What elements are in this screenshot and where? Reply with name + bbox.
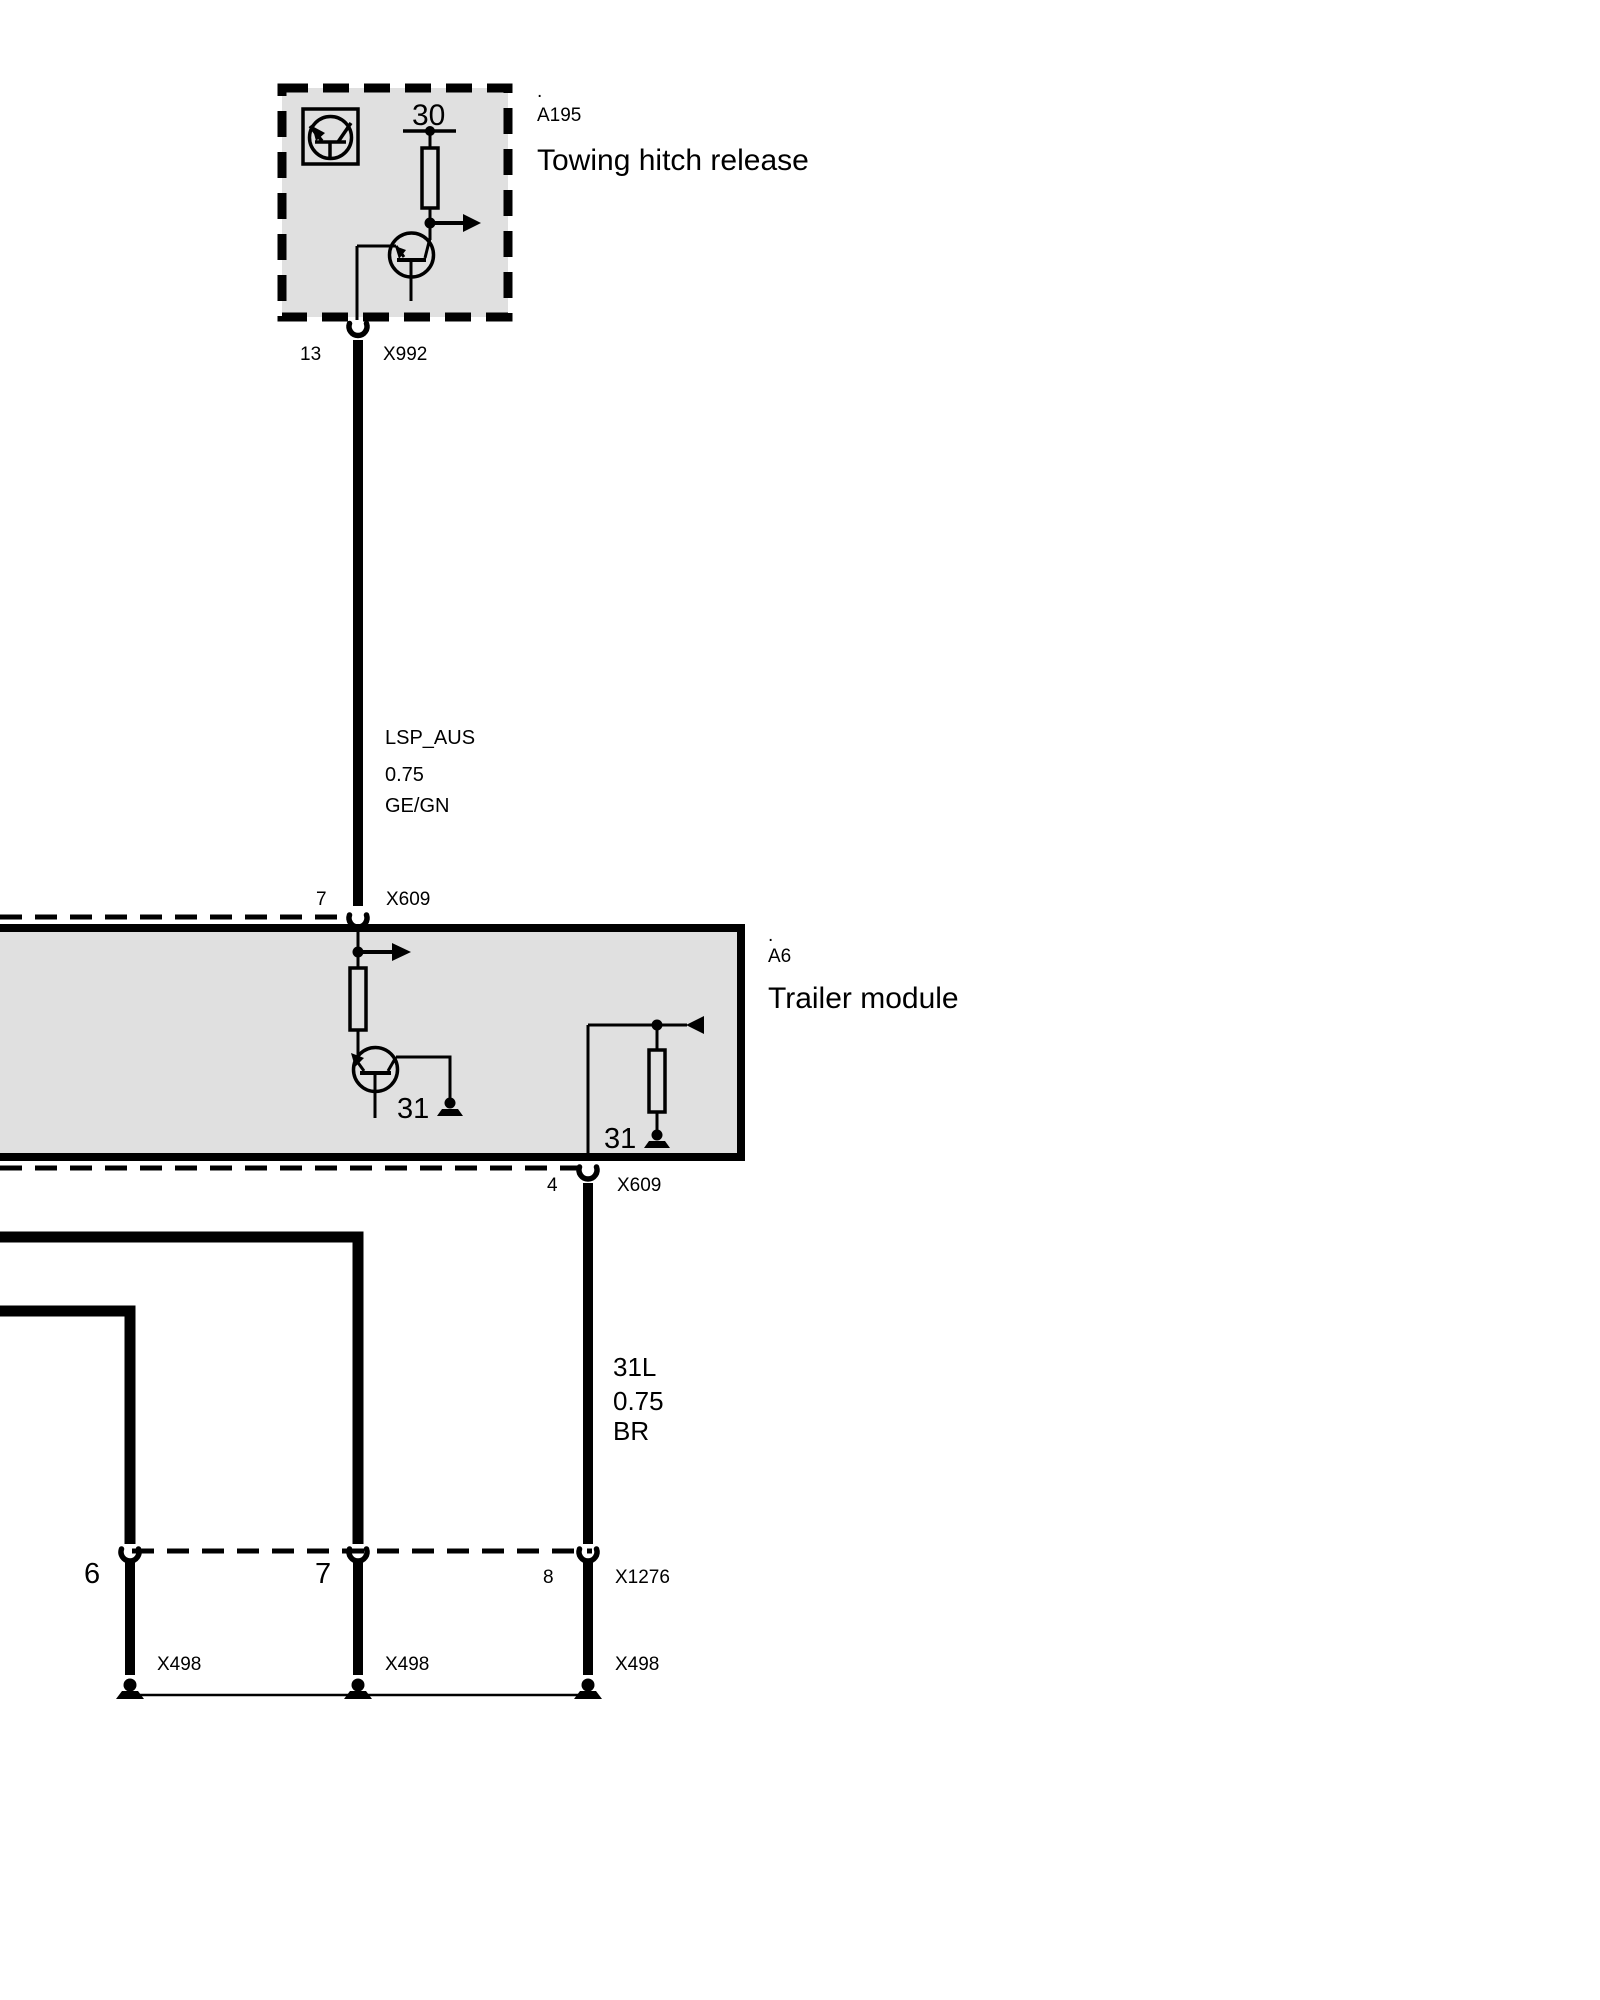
x1276-pin7-label: 7: [315, 1558, 331, 1590]
ground-symbol-left: [116, 1679, 144, 1700]
x498-left-label: X498: [157, 1654, 201, 1675]
a195-id-label: A195: [537, 105, 581, 126]
connector-x1276: 6 7 8 X1276: [84, 1549, 670, 1590]
terminal-31-right-label: 31: [604, 1123, 636, 1155]
wire-lsp-aus-name: LSP_AUS: [385, 727, 475, 749]
wire-lsp-aus-labels: LSP_AUS 0.75 GE/GN: [385, 727, 475, 817]
towing-hitch-release-labels: . A195 Towing hitch release: [537, 81, 809, 177]
x609-top-id-label: X609: [386, 889, 430, 910]
wire-lsp-aus-color: GE/GN: [385, 795, 449, 817]
x1276-id-label: X1276: [615, 1567, 670, 1588]
a6-name-label: Trailer module: [768, 982, 959, 1015]
connector-x992: 13 X992: [300, 324, 427, 366]
wire-31l-labels: 31L 0.75 BR: [613, 1352, 664, 1446]
ground-left-dot: [124, 1679, 137, 1692]
ground-symbol-right: [574, 1679, 602, 1700]
x1276-pin6-label: 6: [84, 1558, 100, 1590]
towing-hitch-release-box: 30: [282, 88, 508, 320]
a6-id-label: A6: [768, 946, 791, 967]
trailer-module-labels: . A6 Trailer module: [768, 925, 959, 1015]
ground-right-dot: [582, 1679, 595, 1692]
ground-symbol-middle: [344, 1679, 372, 1700]
connector-x609-bottom: 4 X609: [547, 1167, 661, 1196]
x992-id-label: X992: [383, 344, 427, 365]
x609-bottom-pin-label: 4: [547, 1175, 558, 1196]
connector-x609-top-cup: [349, 915, 367, 927]
x1276-pin8-label: 8: [543, 1567, 554, 1588]
ground-left-bar: [116, 1691, 144, 1699]
wire-31l-size: 0.75: [613, 1386, 664, 1416]
connector-x609-bottom-cup: [579, 1167, 597, 1179]
ground-a6-right-dot: [652, 1130, 663, 1141]
terminal-31-left-label: 31: [397, 1093, 429, 1125]
ground-right-bar: [574, 1691, 602, 1699]
wire-lsp-aus-size: 0.75: [385, 764, 424, 786]
ground-middle-bar: [344, 1691, 372, 1699]
x609-top-pin-label: 7: [316, 889, 327, 910]
wiring-diagram-page: 30 . A195 Towing hitch release: [0, 0, 1600, 2000]
a6-dot: .: [768, 925, 773, 946]
x498-middle-label: X498: [385, 1654, 429, 1675]
x609-bottom-id-label: X609: [617, 1175, 661, 1196]
connector-x609-top: 7 X609: [316, 889, 430, 927]
a195-dot: .: [537, 81, 542, 102]
wire-31l-color: BR: [613, 1416, 649, 1446]
wire-bus-middle: [0, 1237, 358, 1544]
connector-x992-cup: [349, 324, 367, 336]
connector-x1276-cup-6: [121, 1549, 139, 1561]
wiring-diagram: 30 . A195 Towing hitch release: [0, 0, 1600, 2000]
a195-name-label: Towing hitch release: [537, 144, 809, 177]
ground-a6-left-dot: [445, 1098, 456, 1109]
x498-right-label: X498: [615, 1654, 659, 1675]
x992-pin-label: 13: [300, 344, 321, 365]
ground-middle-dot: [352, 1679, 365, 1692]
wire-bus-left: [0, 1311, 130, 1544]
wire-31l-name: 31L: [613, 1352, 656, 1382]
